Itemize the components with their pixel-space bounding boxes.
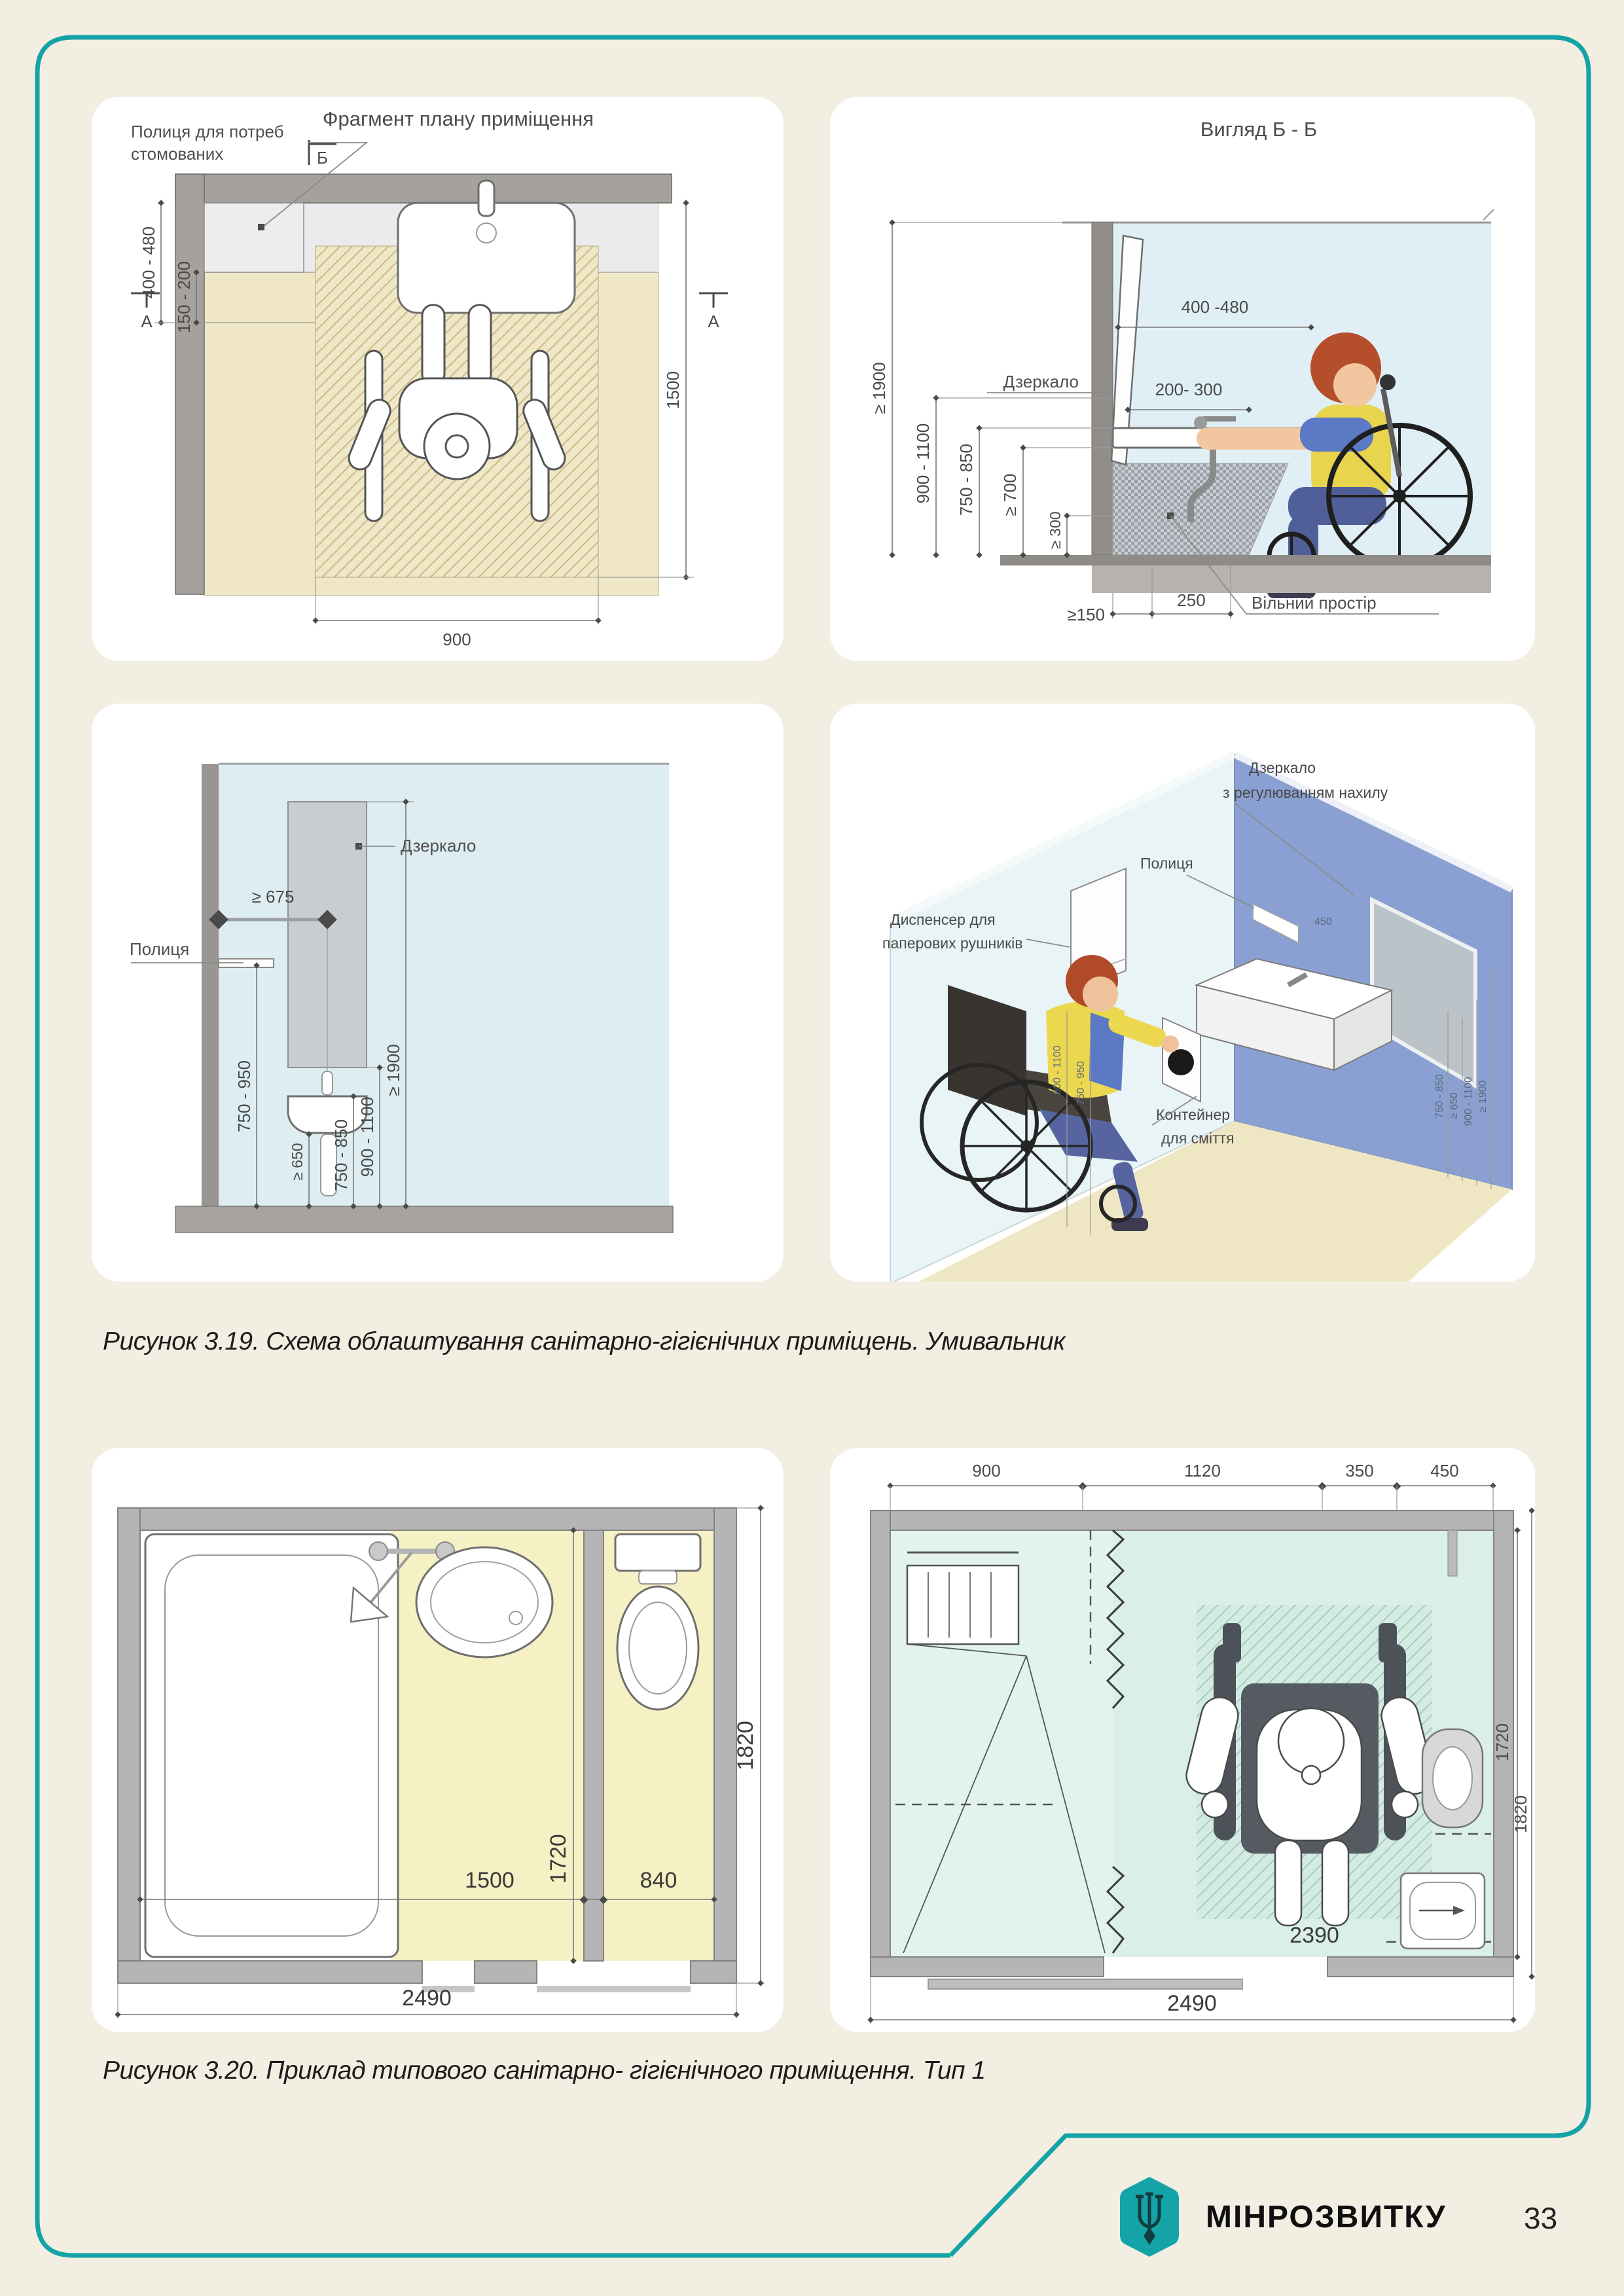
svg-text:900: 900 xyxy=(972,1461,1000,1480)
svg-text:≥ 1900: ≥ 1900 xyxy=(1477,1080,1489,1112)
svg-text:150 - 200: 150 - 200 xyxy=(174,261,194,333)
svg-text:≥ 675: ≥ 675 xyxy=(252,887,295,906)
svg-text:900 - 1100: 900 - 1100 xyxy=(357,1097,377,1177)
svg-text:2390: 2390 xyxy=(1290,1923,1339,1948)
svg-text:750 - 850: 750 - 850 xyxy=(956,444,976,516)
caption-fig-3-20: Рисунок 3.20. Приклад типового санітарно… xyxy=(103,2056,986,2085)
panel-typical-plan-b: 900 1120 350 450 xyxy=(830,1448,1535,2032)
view-title: Вигляд Б - Б xyxy=(1200,118,1317,141)
svg-text:400 - 480: 400 - 480 xyxy=(139,226,158,298)
svg-text:900 - 1100: 900 - 1100 xyxy=(913,423,933,503)
svg-text:Дзеркало: Дзеркало xyxy=(1003,372,1079,391)
page-number: 33 xyxy=(1524,2200,1557,2236)
svg-text:1820: 1820 xyxy=(1511,1795,1530,1833)
document-page: Фрагмент плану приміщення Б Полиця для п… xyxy=(0,0,1624,2296)
panel-typical-plan-a: 1500 840 1720 1820 2490 xyxy=(92,1448,784,2032)
ministry-logo-icon xyxy=(1108,2174,1191,2259)
svg-text:1500: 1500 xyxy=(663,371,683,409)
panel-plan-fragment: Фрагмент плану приміщення Б Полиця для п… xyxy=(92,97,784,661)
section-marker-a-right: А xyxy=(699,293,728,331)
floor-slab xyxy=(1000,555,1491,565)
room-background xyxy=(219,764,669,1206)
svg-text:≥150: ≥150 xyxy=(1067,605,1105,624)
svg-text:750 - 950: 750 - 950 xyxy=(1075,1061,1087,1105)
panel-elevation: Дзеркало ≥ 675 Полиця 750 - 950 ≥ 650 75… xyxy=(92,704,784,1282)
svg-text:750 - 850: 750 - 850 xyxy=(1434,1074,1445,1119)
svg-text:≥ 300: ≥ 300 xyxy=(1047,511,1064,548)
svg-text:450: 450 xyxy=(1430,1461,1458,1480)
svg-text:Диспенсер для: Диспенсер для xyxy=(890,911,996,928)
svg-text:2490: 2490 xyxy=(402,1986,452,2011)
svg-text:≥ 650: ≥ 650 xyxy=(1449,1092,1460,1119)
oval-washbasin xyxy=(416,1547,552,1657)
wall-section xyxy=(1092,223,1113,555)
ministry-logo-text: МІНРОЗВИТКУ xyxy=(1206,2199,1447,2235)
floor-slab xyxy=(175,1206,673,1232)
svg-text:≥ 1900: ≥ 1900 xyxy=(384,1044,403,1096)
svg-text:Дзеркало: Дзеркало xyxy=(1249,759,1316,776)
svg-text:Контейнер: Контейнер xyxy=(1156,1106,1230,1123)
svg-text:800 - 1100: 800 - 1100 xyxy=(1052,1045,1063,1094)
svg-text:750 - 850: 750 - 850 xyxy=(331,1119,351,1191)
svg-text:стомованих: стомованих xyxy=(131,144,223,164)
svg-text:А: А xyxy=(141,312,153,331)
svg-text:Дзеркало: Дзеркало xyxy=(401,836,476,855)
svg-text:Полиця для потреб: Полиця для потреб xyxy=(131,122,284,141)
svg-text:750 - 950: 750 - 950 xyxy=(234,1060,254,1132)
washbasin xyxy=(1401,1873,1485,1948)
svg-text:для сміття: для сміття xyxy=(1161,1130,1235,1147)
panel-view-bb: Вигляд Б - Б xyxy=(830,97,1535,661)
svg-text:Вільний простір: Вільний простір xyxy=(1252,593,1377,613)
svg-text:400 -480: 400 -480 xyxy=(1182,297,1249,317)
svg-text:900 - 1100: 900 - 1100 xyxy=(1463,1077,1474,1126)
svg-text:2490: 2490 xyxy=(1167,1991,1217,2016)
svg-text:1820: 1820 xyxy=(733,1721,758,1770)
svg-text:840: 840 xyxy=(640,1868,677,1893)
svg-text:≥ 650: ≥ 650 xyxy=(289,1143,306,1180)
svg-text:≥ 1900: ≥ 1900 xyxy=(869,362,889,414)
wall-strip xyxy=(202,764,219,1206)
caption-fig-3-19: Рисунок 3.19. Схема облаштування санітар… xyxy=(103,1327,1065,1356)
toilet xyxy=(615,1534,700,1710)
svg-text:з регулюванням нахилу: з регулюванням нахилу xyxy=(1223,784,1388,801)
svg-text:1500: 1500 xyxy=(465,1868,514,1893)
svg-text:Полиця: Полиця xyxy=(130,939,189,959)
svg-text:А: А xyxy=(708,312,719,331)
svg-text:паперових рушників: паперових рушників xyxy=(882,935,1022,952)
svg-text:Полиця: Полиця xyxy=(1140,855,1193,872)
panel-isometric: Дзеркало з регулюванням нахилу Полиця 45… xyxy=(830,704,1535,1282)
svg-text:900: 900 xyxy=(442,630,471,649)
svg-text:200- 300: 200- 300 xyxy=(1155,380,1223,399)
svg-text:1720: 1720 xyxy=(546,1834,571,1884)
svg-text:≥ 700: ≥ 700 xyxy=(1000,474,1020,516)
svg-text:250: 250 xyxy=(1177,590,1205,610)
ostomy-shelf xyxy=(204,203,304,272)
plan-title: Фрагмент плану приміщення xyxy=(323,107,594,130)
dim-shelf-offset: 150 - 200 xyxy=(174,261,196,333)
svg-text:Б: Б xyxy=(317,148,328,168)
section-marker-b: Б xyxy=(309,140,336,168)
svg-text:450: 450 xyxy=(1314,916,1332,927)
svg-text:1120: 1120 xyxy=(1184,1461,1221,1480)
folding-shower-seat xyxy=(907,1552,1019,1644)
svg-text:350: 350 xyxy=(1345,1461,1373,1480)
svg-text:1720: 1720 xyxy=(1492,1723,1512,1761)
